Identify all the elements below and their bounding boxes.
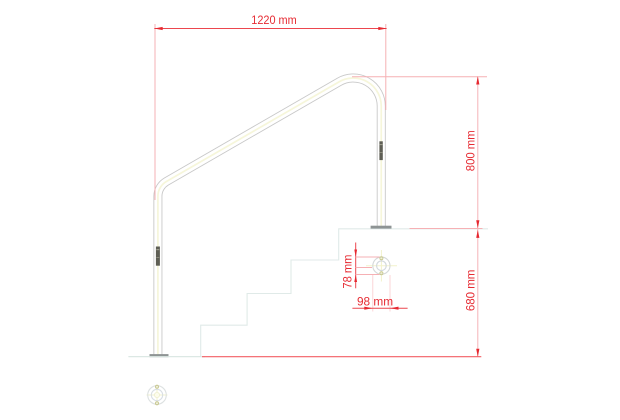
svg-text:98 mm: 98 mm: [357, 295, 393, 309]
svg-text:800 mm: 800 mm: [463, 130, 477, 171]
svg-text:78 mm: 78 mm: [341, 255, 355, 289]
svg-text:680 mm: 680 mm: [463, 270, 477, 312]
svg-text:1220 mm: 1220 mm: [251, 13, 297, 27]
